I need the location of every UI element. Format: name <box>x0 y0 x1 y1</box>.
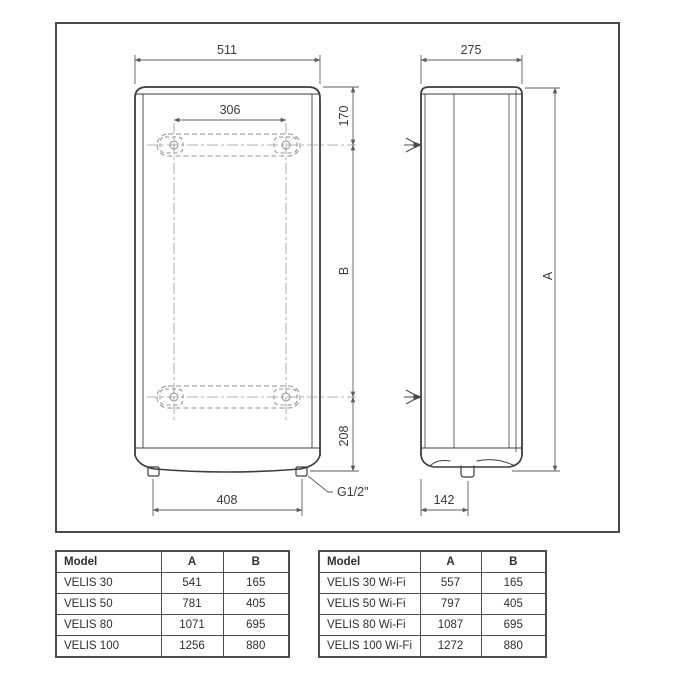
table-row: VELIS 100 1256 880 <box>56 636 289 658</box>
cell-a: 797 <box>420 594 481 615</box>
cell-a: 1071 <box>161 615 223 636</box>
cell-a: 541 <box>161 573 223 594</box>
page: 511 306 170 B 208 408 G1/2" <box>0 0 678 678</box>
dimension-drawing: 511 306 170 B 208 408 G1/2" <box>57 24 618 531</box>
cell-model: VELIS 30 <box>56 573 161 594</box>
dim-label-306: 306 <box>220 103 241 117</box>
cell-model: VELIS 100 Wi-Fi <box>319 636 420 658</box>
dim-label-208: 208 <box>337 426 351 447</box>
center-lines <box>147 123 356 422</box>
side-dimension-lines <box>421 55 560 516</box>
front-dimension-lines <box>135 55 359 516</box>
cell-b: 165 <box>481 573 546 594</box>
table-header-row: Model A B <box>319 551 546 573</box>
header-a: A <box>420 551 481 573</box>
header-b: B <box>481 551 546 573</box>
dim-label-275: 275 <box>461 43 482 57</box>
cell-a: 557 <box>420 573 481 594</box>
header-a: A <box>161 551 223 573</box>
table-row: VELIS 30 541 165 <box>56 573 289 594</box>
cell-a: 1256 <box>161 636 223 658</box>
cell-b: 880 <box>223 636 289 658</box>
cell-model: VELIS 50 <box>56 594 161 615</box>
dim-label-511: 511 <box>217 43 237 57</box>
technical-drawing-panel: 511 306 170 B 208 408 G1/2" <box>55 22 620 533</box>
dim-label-B: B <box>337 267 351 275</box>
wall-mount-arrow-icon <box>404 390 421 404</box>
header-model: Model <box>56 551 161 573</box>
cell-model: VELIS 50 Wi-Fi <box>319 594 420 615</box>
table-row: VELIS 80 1071 695 <box>56 615 289 636</box>
wall-mount-arrow-icon <box>404 138 421 152</box>
table-row: VELIS 80 Wi-Fi 1087 695 <box>319 615 546 636</box>
connection-leader-line <box>308 476 333 492</box>
cell-a: 1087 <box>420 615 481 636</box>
dim-label-408: 408 <box>217 493 238 507</box>
cell-b: 165 <box>223 573 289 594</box>
side-view-outline <box>421 87 522 477</box>
cell-b: 405 <box>223 594 289 615</box>
table-row: VELIS 100 Wi-Fi 1272 880 <box>319 636 546 658</box>
dim-label-170: 170 <box>337 106 351 127</box>
cell-b: 880 <box>481 636 546 658</box>
cell-a: 1272 <box>420 636 481 658</box>
table-row: VELIS 30 Wi-Fi 557 165 <box>319 573 546 594</box>
table-row: VELIS 50 Wi-Fi 797 405 <box>319 594 546 615</box>
header-model: Model <box>319 551 420 573</box>
header-b: B <box>223 551 289 573</box>
table-row: VELIS 50 781 405 <box>56 594 289 615</box>
cell-model: VELIS 80 Wi-Fi <box>319 615 420 636</box>
cell-b: 405 <box>481 594 546 615</box>
dim-label-A: A <box>541 271 555 280</box>
dim-label-142: 142 <box>434 493 455 507</box>
cell-b: 695 <box>223 615 289 636</box>
spec-table-velis: Model A B VELIS 30 541 165 VELIS 50 781 … <box>55 550 290 658</box>
cell-a: 781 <box>161 594 223 615</box>
spec-table-velis-wifi: Model A B VELIS 30 Wi-Fi 557 165 VELIS 5… <box>318 550 547 658</box>
table-header-row: Model A B <box>56 551 289 573</box>
cell-b: 695 <box>481 615 546 636</box>
cell-model: VELIS 30 Wi-Fi <box>319 573 420 594</box>
cell-model: VELIS 80 <box>56 615 161 636</box>
dim-label-connection: G1/2" <box>337 485 369 499</box>
cell-model: VELIS 100 <box>56 636 161 658</box>
